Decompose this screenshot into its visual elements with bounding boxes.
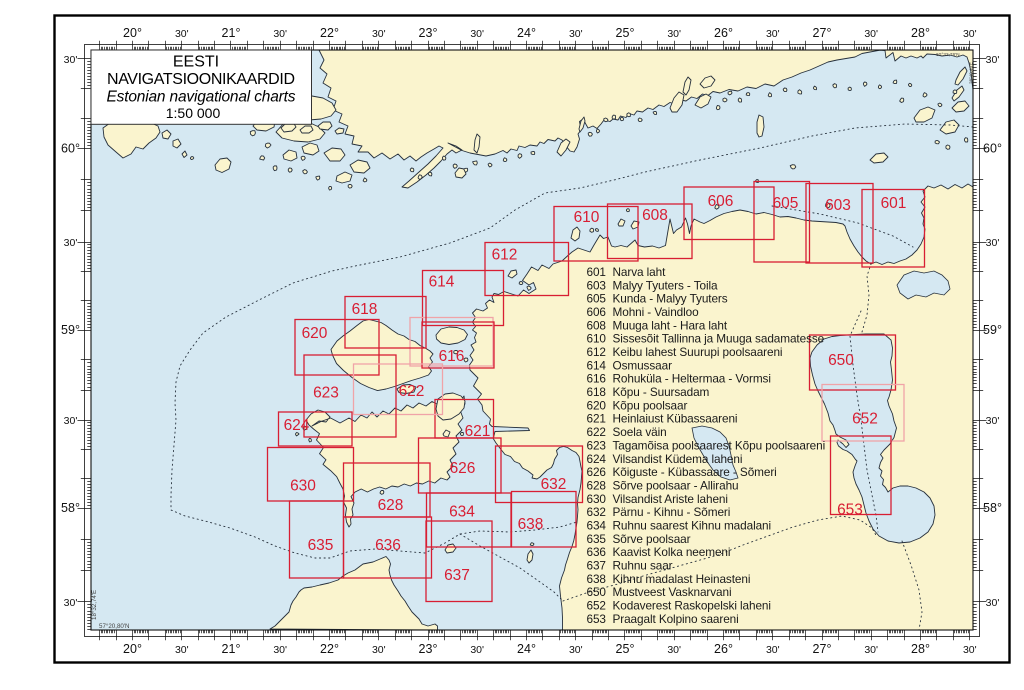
svg-text:614: 614 xyxy=(429,274,455,291)
svg-text:28°40,40'E: 28°40,40'E xyxy=(969,62,974,84)
svg-text:22°: 22° xyxy=(320,642,339,656)
svg-text:606: 606 xyxy=(708,193,734,210)
svg-text:Estonian navigational charts: Estonian navigational charts xyxy=(107,89,296,106)
svg-text:650: 650 xyxy=(828,352,854,369)
svg-text:626: 626 xyxy=(450,460,476,477)
svg-text:628: 628 xyxy=(587,478,607,492)
svg-text:Praagalt Kolpino saareni: Praagalt Kolpino saareni xyxy=(613,612,739,626)
svg-text:18°32,74'E: 18°32,74'E xyxy=(91,590,98,620)
svg-text:636: 636 xyxy=(587,545,607,559)
svg-text:653: 653 xyxy=(587,612,607,626)
svg-text:606: 606 xyxy=(587,305,607,319)
svg-text:20°: 20° xyxy=(123,26,142,40)
svg-text:653: 653 xyxy=(837,502,863,519)
svg-text:623: 623 xyxy=(587,438,607,452)
svg-text:603: 603 xyxy=(587,278,607,292)
svg-text:24°: 24° xyxy=(517,26,536,40)
svg-text:25°: 25° xyxy=(616,642,635,656)
svg-text:638: 638 xyxy=(518,516,544,533)
svg-text:30': 30' xyxy=(766,28,780,40)
svg-text:23°: 23° xyxy=(419,26,438,40)
svg-text:30': 30' xyxy=(986,54,1000,66)
svg-text:601: 601 xyxy=(587,265,606,279)
svg-text:Kaavist Kolka neemeni: Kaavist Kolka neemeni xyxy=(613,545,731,559)
svg-text:26°: 26° xyxy=(714,26,733,40)
svg-text:30': 30' xyxy=(864,644,878,656)
svg-text:30': 30' xyxy=(766,644,780,656)
svg-text:Mohni - Vaindloo: Mohni - Vaindloo xyxy=(613,305,700,319)
svg-text:Vilsandist Küdema laheni: Vilsandist Küdema laheni xyxy=(613,452,743,466)
svg-text:30': 30' xyxy=(64,237,78,249)
svg-text:605: 605 xyxy=(773,195,799,212)
svg-text:30': 30' xyxy=(864,28,878,40)
svg-text:30': 30' xyxy=(470,28,484,40)
svg-text:58°: 58° xyxy=(983,501,1002,515)
svg-text:30': 30' xyxy=(64,597,78,609)
svg-text:28°: 28° xyxy=(911,26,930,40)
svg-text:610: 610 xyxy=(574,209,600,226)
svg-text:30': 30' xyxy=(963,28,977,40)
svg-text:630: 630 xyxy=(290,478,316,495)
svg-text:Sõrve poolsaar: Sõrve poolsaar xyxy=(613,532,691,546)
svg-text:637: 637 xyxy=(444,567,470,584)
svg-text:Ruhnu saar: Ruhnu saar xyxy=(613,559,673,573)
svg-text:Sissesõit Tallinna ja Muuga sa: Sissesõit Tallinna ja Muuga sadamatesse xyxy=(613,332,825,346)
svg-text:28°: 28° xyxy=(911,642,930,656)
svg-text:622: 622 xyxy=(399,383,425,400)
svg-text:23°: 23° xyxy=(419,642,438,656)
svg-text:25°: 25° xyxy=(616,26,635,40)
svg-text:Vilsandist Ariste laheni: Vilsandist Ariste laheni xyxy=(613,492,728,506)
svg-text:650: 650 xyxy=(587,585,607,599)
svg-text:616: 616 xyxy=(587,372,607,386)
svg-text:57°20,80'N: 57°20,80'N xyxy=(99,623,130,630)
svg-text:26°: 26° xyxy=(714,642,733,656)
svg-text:608: 608 xyxy=(642,207,668,224)
svg-text:Kihnu madalast Heinasteni: Kihnu madalast Heinasteni xyxy=(613,572,751,586)
svg-text:623: 623 xyxy=(313,385,339,402)
svg-text:21°: 21° xyxy=(222,26,241,40)
svg-text:612: 612 xyxy=(587,345,606,359)
svg-text:Kunda - Malyy Tyuters: Kunda - Malyy Tyuters xyxy=(613,292,728,306)
svg-text:30': 30' xyxy=(667,28,681,40)
svg-text:24°: 24° xyxy=(517,642,536,656)
svg-text:630: 630 xyxy=(587,492,607,506)
svg-text:616: 616 xyxy=(439,348,465,365)
svg-text:1:50 000: 1:50 000 xyxy=(166,105,221,121)
svg-text:20°: 20° xyxy=(123,642,142,656)
svg-text:60°: 60° xyxy=(983,142,1002,156)
svg-text:620: 620 xyxy=(302,325,328,342)
svg-text:632: 632 xyxy=(587,505,606,519)
svg-text:634: 634 xyxy=(587,519,607,533)
svg-text:59°: 59° xyxy=(61,323,80,337)
svg-text:30': 30' xyxy=(372,644,386,656)
svg-text:624: 624 xyxy=(587,452,607,466)
svg-text:Soela väin: Soela väin xyxy=(613,425,667,439)
svg-text:636: 636 xyxy=(375,537,401,554)
svg-text:Kõpu poolsaar: Kõpu poolsaar xyxy=(613,398,688,412)
svg-text:618: 618 xyxy=(352,301,378,318)
svg-text:620: 620 xyxy=(587,398,607,412)
svg-text:60°: 60° xyxy=(61,142,80,156)
svg-text:603: 603 xyxy=(825,197,851,214)
svg-text:618: 618 xyxy=(587,385,607,399)
svg-text:30': 30' xyxy=(569,644,583,656)
svg-text:30': 30' xyxy=(569,28,583,40)
svg-text:Mustveest Vasknarvani: Mustveest Vasknarvani xyxy=(613,585,732,599)
svg-text:622: 622 xyxy=(587,425,606,439)
svg-text:614: 614 xyxy=(587,358,607,372)
svg-text:EESTI: EESTI xyxy=(173,54,219,71)
svg-text:60°32,76'N: 60°32,76'N xyxy=(936,52,960,58)
svg-text:22°: 22° xyxy=(320,26,339,40)
svg-text:605: 605 xyxy=(587,292,607,306)
svg-text:635: 635 xyxy=(308,537,334,554)
svg-text:30': 30' xyxy=(986,597,1000,609)
svg-text:Malyy Tyuters - Toila: Malyy Tyuters - Toila xyxy=(613,278,719,292)
svg-text:Pärnu - Kihnu - Sõmeri: Pärnu - Kihnu - Sõmeri xyxy=(613,505,731,519)
svg-text:58°: 58° xyxy=(61,501,80,515)
svg-text:628: 628 xyxy=(378,497,404,514)
svg-text:Kodaverest Raskopelski laheni: Kodaverest Raskopelski laheni xyxy=(613,599,771,613)
svg-text:30': 30' xyxy=(986,237,1000,249)
svg-text:634: 634 xyxy=(449,504,475,521)
svg-text:Kõiguste - Kübassaare - Sõmeri: Kõiguste - Kübassaare - Sõmeri xyxy=(613,465,777,479)
svg-text:59°: 59° xyxy=(983,323,1002,337)
svg-text:608: 608 xyxy=(587,318,607,332)
svg-text:Keibu lahest Suurupi poolsaare: Keibu lahest Suurupi poolsaareni xyxy=(613,345,783,359)
svg-text:637: 637 xyxy=(587,559,606,573)
svg-text:30': 30' xyxy=(963,644,977,656)
svg-text:30': 30' xyxy=(64,54,78,66)
svg-text:Ruhnu saarest Kihnu madalani: Ruhnu saarest Kihnu madalani xyxy=(613,519,772,533)
svg-text:NAVIGATSIOONIKAARDID: NAVIGATSIOONIKAARDID xyxy=(107,71,295,88)
svg-text:30': 30' xyxy=(667,644,681,656)
svg-text:21°: 21° xyxy=(222,642,241,656)
svg-text:Osmussaar: Osmussaar xyxy=(613,358,673,372)
svg-text:30': 30' xyxy=(986,415,1000,427)
svg-text:610: 610 xyxy=(587,332,607,346)
svg-text:652: 652 xyxy=(852,411,878,428)
svg-text:621: 621 xyxy=(587,412,606,426)
svg-text:Narva laht: Narva laht xyxy=(613,265,667,279)
svg-text:30': 30' xyxy=(470,644,484,656)
svg-text:27°: 27° xyxy=(813,642,832,656)
svg-text:624: 624 xyxy=(284,417,310,434)
svg-text:626: 626 xyxy=(587,465,607,479)
svg-text:Muuga laht - Hara laht: Muuga laht - Hara laht xyxy=(613,318,728,332)
svg-text:635: 635 xyxy=(587,532,607,546)
svg-text:30': 30' xyxy=(175,644,189,656)
svg-text:652: 652 xyxy=(587,599,606,613)
svg-text:30': 30' xyxy=(64,415,78,427)
svg-text:30': 30' xyxy=(273,28,287,40)
svg-text:632: 632 xyxy=(541,476,567,493)
svg-text:30': 30' xyxy=(175,28,189,40)
svg-text:27°: 27° xyxy=(813,26,832,40)
svg-text:601: 601 xyxy=(881,195,907,212)
svg-text:Sõrve poolsaar - Allirahu: Sõrve poolsaar - Allirahu xyxy=(613,478,739,492)
svg-text:Tagamõisa poolsaarest Kõpu poo: Tagamõisa poolsaarest Kõpu poolsaareni xyxy=(613,438,826,452)
svg-text:Rohuküla - Heltermaa - Vormsi: Rohuküla - Heltermaa - Vormsi xyxy=(613,372,771,386)
svg-text:Kõpu - Suursadam: Kõpu - Suursadam xyxy=(613,385,710,399)
svg-text:30': 30' xyxy=(372,28,386,40)
svg-text:30': 30' xyxy=(273,644,287,656)
svg-text:612: 612 xyxy=(492,247,518,264)
svg-text:638: 638 xyxy=(587,572,607,586)
svg-text:Heinlaiust Kübassaareni: Heinlaiust Kübassaareni xyxy=(613,412,738,426)
